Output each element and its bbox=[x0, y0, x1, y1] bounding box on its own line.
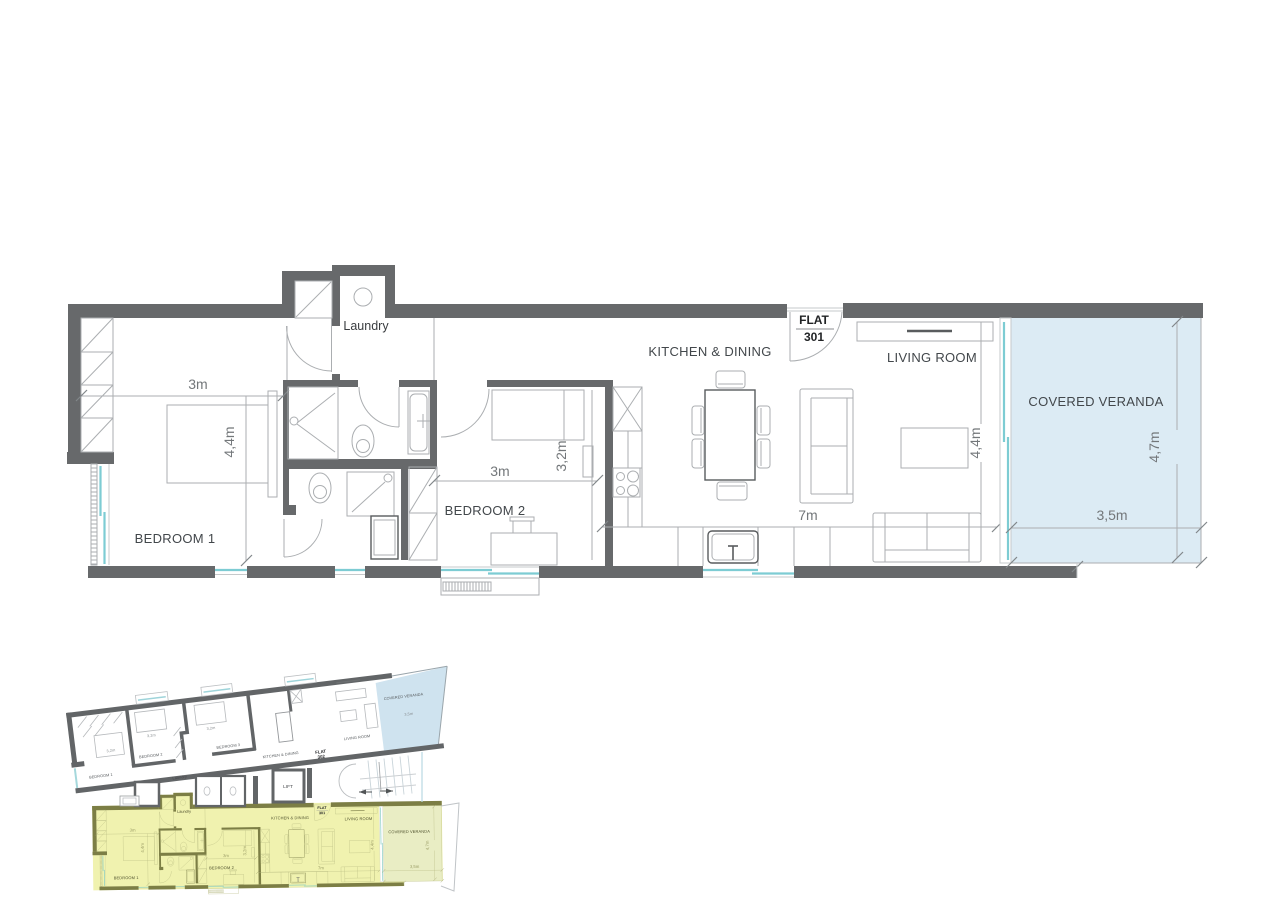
svg-text:3m: 3m bbox=[490, 463, 509, 479]
svg-text:LIVING ROOM: LIVING ROOM bbox=[887, 350, 977, 365]
svg-text:FLAT: FLAT bbox=[799, 313, 829, 327]
svg-text:3,2m: 3,2m bbox=[553, 440, 569, 471]
svg-text:3m: 3m bbox=[188, 376, 207, 392]
svg-text:7m: 7m bbox=[798, 507, 817, 523]
svg-text:4,4m: 4,4m bbox=[967, 427, 983, 458]
svg-text:4,7m: 4,7m bbox=[1146, 431, 1162, 462]
svg-text:KITCHEN & DINING: KITCHEN & DINING bbox=[648, 344, 771, 359]
svg-text:Laundry: Laundry bbox=[343, 319, 389, 333]
svg-text:LIFT: LIFT bbox=[283, 784, 293, 790]
svg-text:301: 301 bbox=[804, 330, 824, 344]
svg-text:COVERED VERANDA: COVERED VERANDA bbox=[1028, 394, 1163, 409]
svg-text:3,5m: 3,5m bbox=[1096, 507, 1127, 523]
svg-text:4,4m: 4,4m bbox=[221, 426, 237, 457]
svg-text:302: 302 bbox=[317, 754, 325, 760]
svg-text:BEDROOM 1: BEDROOM 1 bbox=[135, 531, 216, 546]
svg-text:BEDROOM 2: BEDROOM 2 bbox=[445, 503, 526, 518]
